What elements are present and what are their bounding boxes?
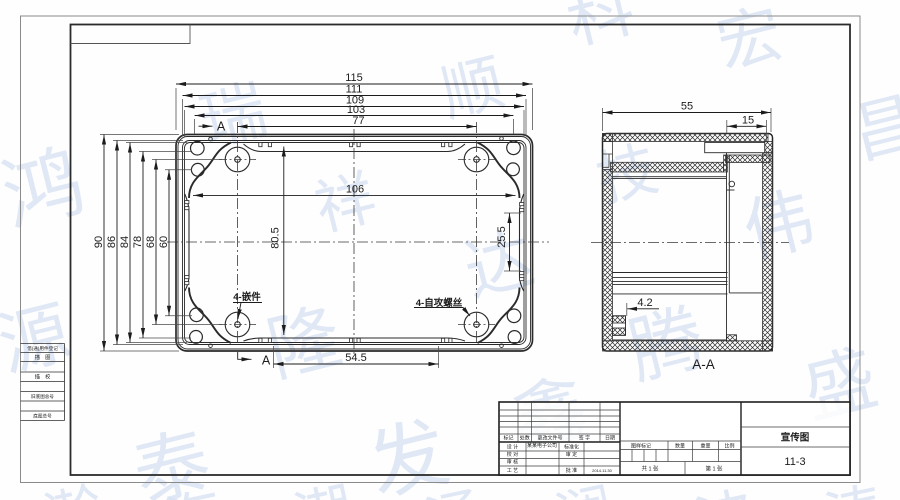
svg-text:科: 科	[559, 0, 641, 58]
svg-text:签 字: 签 字	[579, 435, 590, 442]
svg-text:4-自攻螺丝: 4-自攻螺丝	[416, 297, 463, 309]
svg-text:旧底图总号: 旧底图总号	[31, 393, 54, 400]
svg-text:80.5: 80.5	[270, 227, 282, 248]
svg-text:77: 77	[352, 115, 364, 127]
svg-text:68: 68	[145, 236, 157, 248]
svg-text:鸿: 鸿	[0, 136, 93, 242]
svg-text:瀚: 瀚	[39, 477, 109, 500]
svg-text:底图总号: 底图总号	[33, 413, 52, 420]
svg-text:图样标记: 图样标记	[631, 443, 651, 450]
svg-text:90: 90	[93, 236, 105, 248]
svg-text:校 对: 校 对	[507, 451, 518, 458]
svg-text:审 核: 审 核	[507, 459, 518, 466]
svg-text:顺: 顺	[434, 48, 511, 130]
svg-text:11-3: 11-3	[784, 456, 805, 468]
svg-text:审 定: 审 定	[566, 451, 577, 458]
svg-text:借(通)用件登记: 借(通)用件登记	[27, 345, 58, 352]
svg-text:60: 60	[158, 236, 170, 248]
svg-text:技: 技	[590, 135, 664, 215]
svg-text:比例: 比例	[724, 443, 734, 450]
svg-text:84: 84	[119, 236, 131, 248]
svg-text:处数: 处数	[520, 435, 530, 442]
svg-text:澜: 澜	[549, 477, 619, 500]
svg-text:涛: 涛	[819, 477, 889, 500]
svg-text:设 计: 设 计	[507, 444, 518, 451]
svg-text:发: 发	[360, 407, 457, 500]
svg-text:批 准: 批 准	[566, 467, 577, 474]
svg-text:伟: 伟	[735, 179, 822, 272]
svg-text:106: 106	[346, 183, 364, 195]
svg-text:第 1 张: 第 1 张	[705, 465, 723, 473]
svg-text:某某电子公司: 某某电子公司	[527, 442, 557, 449]
svg-text:标准化: 标准化	[564, 444, 579, 451]
svg-text:潮: 潮	[289, 477, 359, 500]
svg-text:15: 15	[742, 114, 754, 126]
svg-text:波: 波	[689, 482, 759, 500]
svg-text:日期: 日期	[605, 436, 615, 442]
svg-text:描 图: 描 图	[35, 353, 51, 361]
svg-text:86: 86	[106, 236, 118, 248]
svg-text:25.5: 25.5	[496, 226, 508, 247]
svg-text:A-A: A-A	[692, 357, 715, 372]
svg-text:54.5: 54.5	[345, 352, 366, 364]
svg-text:2014.11.30: 2014.11.30	[592, 468, 612, 473]
svg-text:A: A	[262, 354, 271, 368]
svg-text:隆: 隆	[260, 296, 349, 391]
svg-text:祥: 祥	[308, 164, 382, 244]
svg-text:更改文件号: 更改文件号	[537, 435, 562, 442]
svg-text:4.2: 4.2	[637, 297, 652, 309]
svg-text:共 1 张: 共 1 张	[641, 465, 659, 473]
svg-text:115: 115	[345, 72, 363, 84]
svg-text:4-嵌件: 4-嵌件	[233, 291, 261, 303]
svg-text:标记: 标记	[503, 435, 513, 442]
svg-text:数量: 数量	[675, 443, 685, 450]
svg-text:重量: 重量	[700, 443, 710, 450]
svg-text:工 艺: 工 艺	[507, 468, 518, 474]
svg-text:宏: 宏	[710, 0, 790, 82]
svg-text:昌: 昌	[845, 84, 900, 172]
svg-text:描 校: 描 校	[35, 373, 51, 381]
svg-text:A: A	[217, 120, 226, 134]
svg-text:55: 55	[681, 101, 693, 113]
svg-text:78: 78	[132, 236, 144, 248]
svg-text:宣传图: 宣传图	[781, 432, 810, 444]
